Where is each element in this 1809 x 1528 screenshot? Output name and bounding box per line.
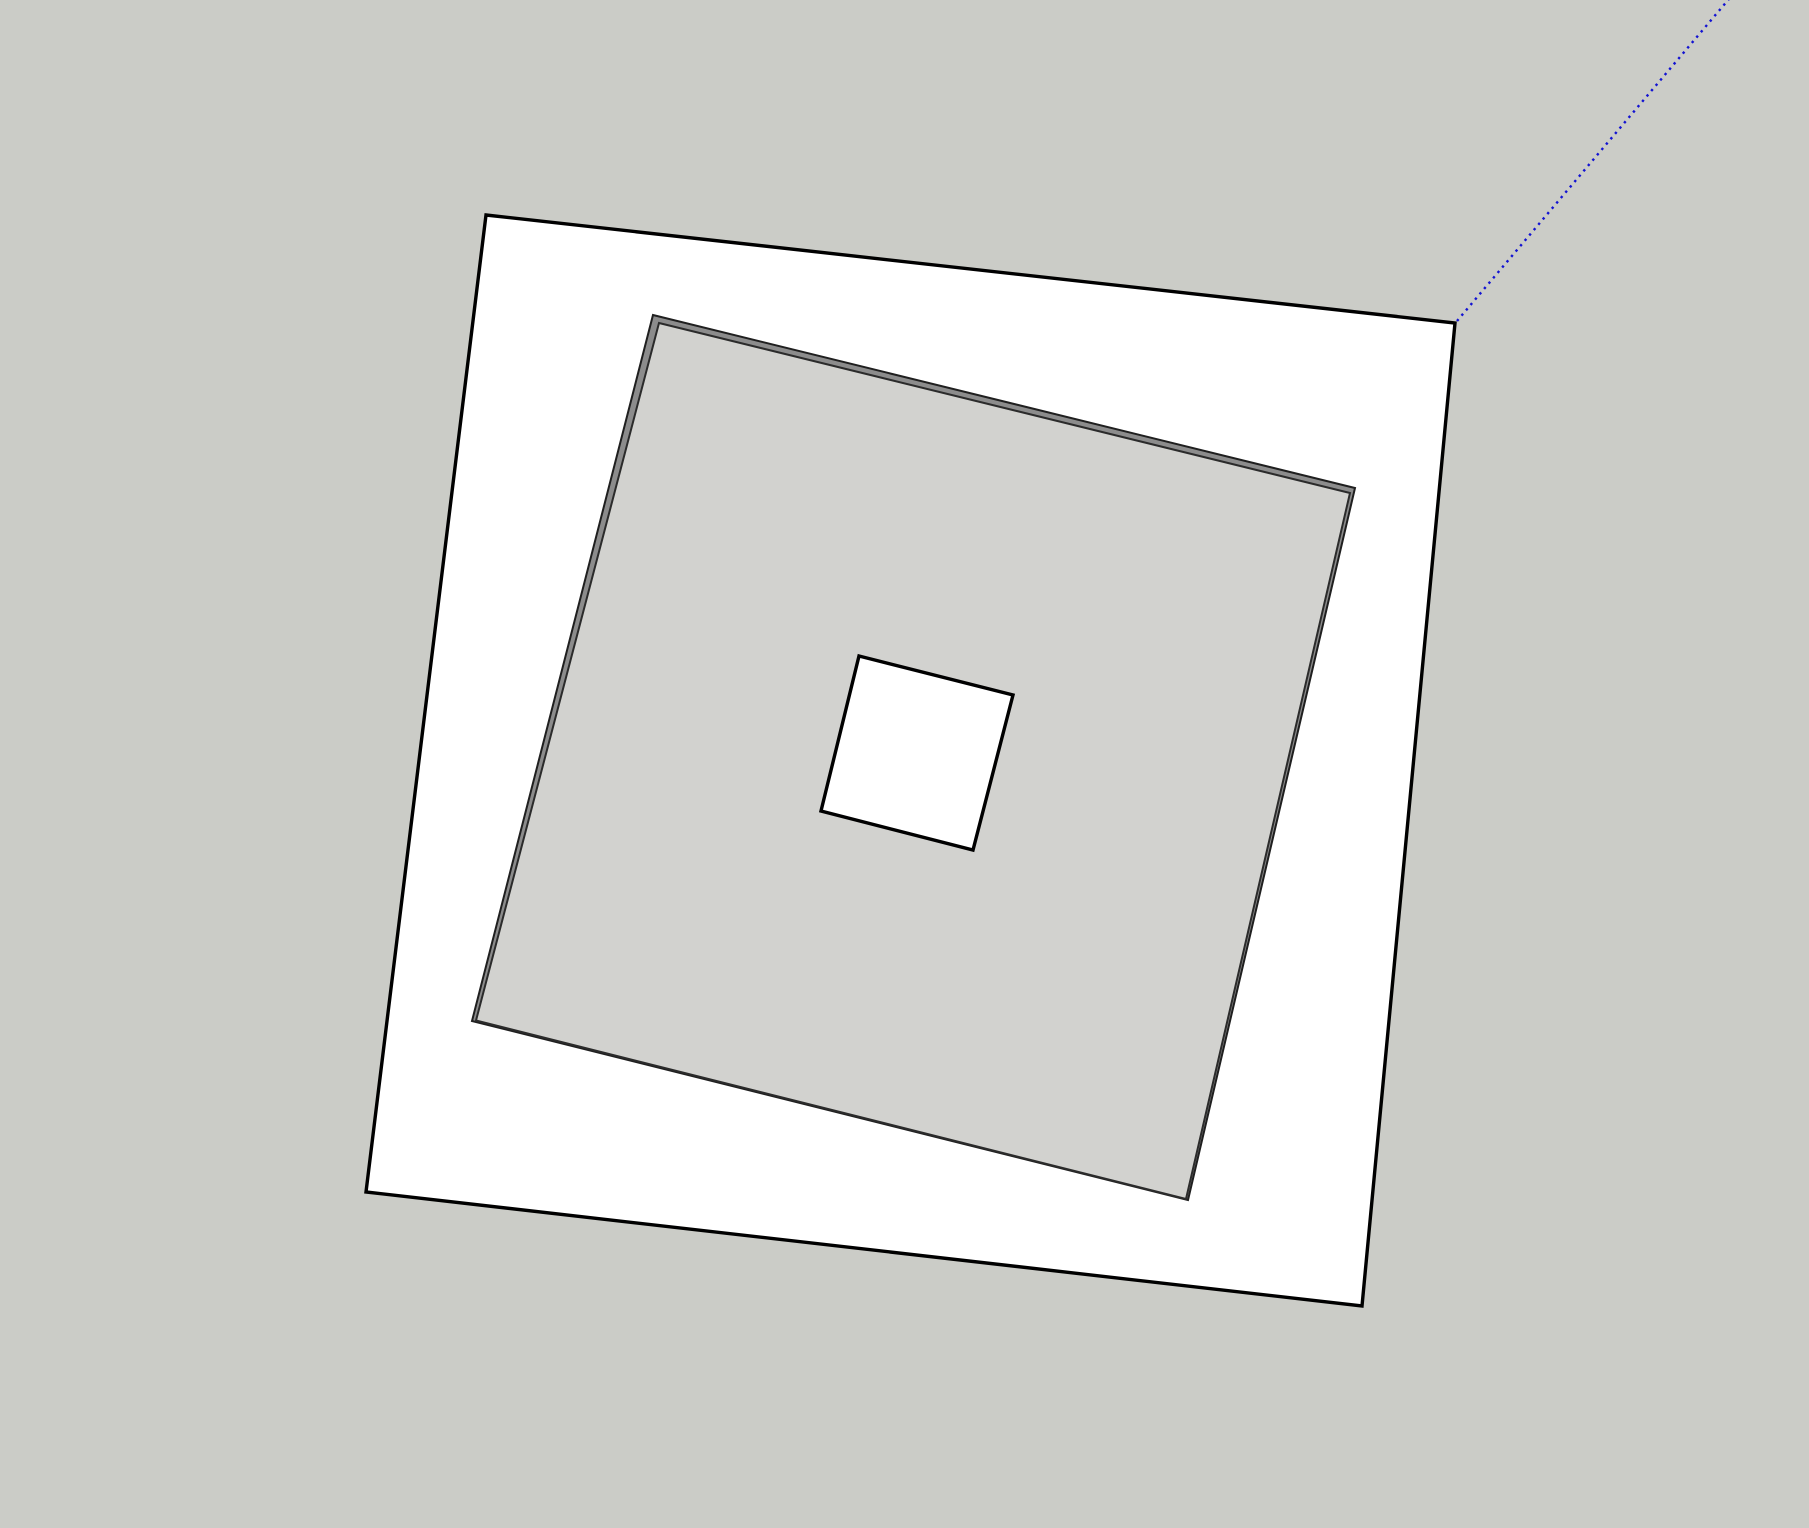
modeling-viewport[interactable] xyxy=(0,0,1809,1528)
model-scene xyxy=(0,0,1809,1528)
